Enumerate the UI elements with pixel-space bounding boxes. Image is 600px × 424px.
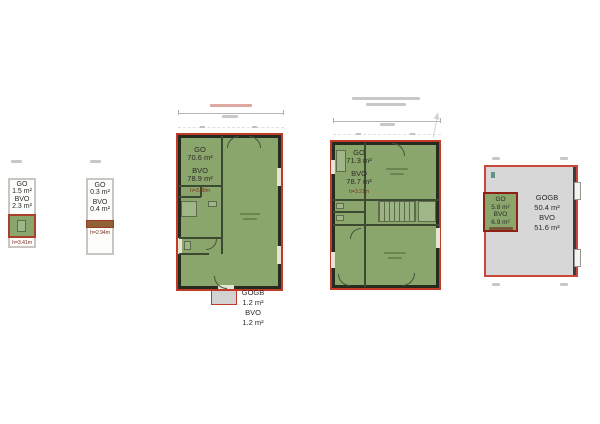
area-labels: GO 71.3 m² bbox=[336, 149, 382, 166]
height-note-smudge bbox=[489, 227, 513, 230]
address-note bbox=[366, 103, 406, 106]
ghost-tick bbox=[356, 133, 361, 135]
gogb-label: GOGB bbox=[236, 288, 270, 298]
bvo-value: 78.9 m² bbox=[178, 175, 222, 183]
room-label-smudge bbox=[243, 218, 257, 220]
dimension-tick-mark bbox=[560, 157, 568, 160]
go-value: 71.3 m² bbox=[336, 157, 382, 165]
window-marker bbox=[436, 228, 440, 248]
bvo-label: BVO bbox=[2, 196, 42, 203]
dimension-line bbox=[333, 121, 441, 122]
dimension-line bbox=[178, 113, 284, 114]
dimension-tick bbox=[178, 110, 179, 115]
annex-labels: GOGB 1.2 m² BVO 1.2 m² bbox=[236, 288, 270, 328]
area-labels: GO 70.6 m² bbox=[178, 146, 222, 163]
room-label-smudge bbox=[388, 257, 402, 259]
bvo-label: BVO bbox=[236, 308, 270, 318]
roof-area-labels: GOGB 50.4 m² BVO 51.6 m² bbox=[518, 193, 576, 233]
window-marker bbox=[574, 249, 581, 267]
bvo-value: 6.9 m² bbox=[485, 219, 516, 227]
shower-fixture bbox=[181, 201, 197, 217]
go-value: 1.5 m² bbox=[2, 188, 42, 195]
area-labels: BVO 78.9 m² bbox=[178, 167, 222, 184]
dimension-tick bbox=[283, 110, 284, 115]
go-label: GO bbox=[485, 196, 516, 204]
interior-wall bbox=[366, 224, 439, 226]
go-label: GO bbox=[2, 181, 42, 188]
room-label-smudge bbox=[240, 213, 260, 215]
bvo-value: 51.6 m² bbox=[518, 223, 576, 233]
ghost-tick bbox=[410, 133, 415, 135]
dimension-label bbox=[380, 123, 395, 126]
interior-wall bbox=[333, 211, 364, 213]
window-marker bbox=[277, 246, 281, 264]
dimension-tick bbox=[333, 118, 334, 123]
window-marker bbox=[331, 252, 335, 268]
bvo-label: BVO bbox=[518, 213, 576, 223]
sink-fixture bbox=[208, 201, 217, 207]
reduced-height-bar bbox=[86, 220, 114, 228]
dimension-tick-mark bbox=[90, 160, 101, 163]
room-label-smudge bbox=[384, 252, 406, 254]
height-note: h=3.08m bbox=[180, 188, 220, 194]
floor-plan-sheet: GO 1.5 m² BVO 2.3 m² h=3.41m GO 0.3 m² B… bbox=[0, 0, 600, 424]
dimension-tick-mark bbox=[492, 157, 500, 160]
dimension-label bbox=[222, 115, 238, 118]
ghost-tick bbox=[200, 126, 205, 128]
bvo-label: BVO bbox=[485, 211, 516, 219]
go-value: 5.8 m² bbox=[485, 204, 516, 212]
bvo-value: 0.4 m² bbox=[80, 206, 120, 213]
gogb-box bbox=[211, 290, 237, 305]
bvo-value: 1.2 m² bbox=[236, 318, 270, 328]
area-labels: GO 1.5 m² BVO 2.3 m² bbox=[2, 181, 42, 210]
interior-wall bbox=[333, 224, 364, 226]
area-labels: GO 0.3 m² bbox=[80, 182, 120, 197]
window-marker bbox=[178, 238, 182, 254]
ghost-tick bbox=[252, 126, 257, 128]
gogb-value: 1.2 m² bbox=[236, 298, 270, 308]
height-note: h=3.21m bbox=[338, 189, 380, 195]
interior-wall bbox=[179, 253, 209, 255]
gogb-value: 50.4 m² bbox=[518, 203, 576, 213]
fixture bbox=[17, 220, 26, 232]
dimension-tick-mark bbox=[11, 160, 22, 163]
bvo-value: 2.3 m² bbox=[2, 203, 42, 210]
go-value: 0.3 m² bbox=[80, 189, 120, 196]
bvo-value: 78.7 m² bbox=[336, 178, 382, 186]
go-value: 70.6 m² bbox=[178, 154, 222, 162]
go-label: GO bbox=[80, 182, 120, 189]
living-area-box bbox=[8, 214, 36, 238]
area-labels: BVO 0.4 m² bbox=[80, 199, 120, 214]
window-marker bbox=[331, 160, 335, 174]
window-marker bbox=[277, 168, 281, 186]
room-label-smudge bbox=[386, 168, 408, 170]
bvo-label: BVO bbox=[80, 199, 120, 206]
room-label-smudge bbox=[390, 173, 404, 175]
interior-wall bbox=[179, 196, 201, 198]
sink-fixture bbox=[336, 215, 344, 221]
north-arrow-icon bbox=[425, 111, 445, 141]
address-note bbox=[352, 97, 420, 100]
toilet-fixture bbox=[336, 203, 344, 209]
living-area-box: GO 5.8 m² BVO 6.9 m² bbox=[483, 192, 518, 232]
interior-wall bbox=[333, 199, 364, 201]
stairs bbox=[378, 201, 416, 222]
plan-title-note bbox=[210, 104, 252, 107]
upper-outline-ghost bbox=[178, 127, 284, 128]
dimension-tick-mark bbox=[492, 283, 500, 286]
height-note: h=2.94m bbox=[80, 230, 120, 236]
area-labels: GO 5.8 m² BVO 6.9 m² bbox=[485, 196, 516, 226]
toilet-fixture bbox=[184, 241, 191, 250]
height-note: h=3.41m bbox=[2, 240, 42, 246]
marker-icon bbox=[491, 172, 495, 178]
gogb-label: GOGB bbox=[518, 193, 576, 203]
closet-fixture bbox=[418, 201, 436, 222]
area-labels: BVO 78.7 m² bbox=[336, 170, 382, 187]
dimension-tick-mark bbox=[560, 283, 568, 286]
